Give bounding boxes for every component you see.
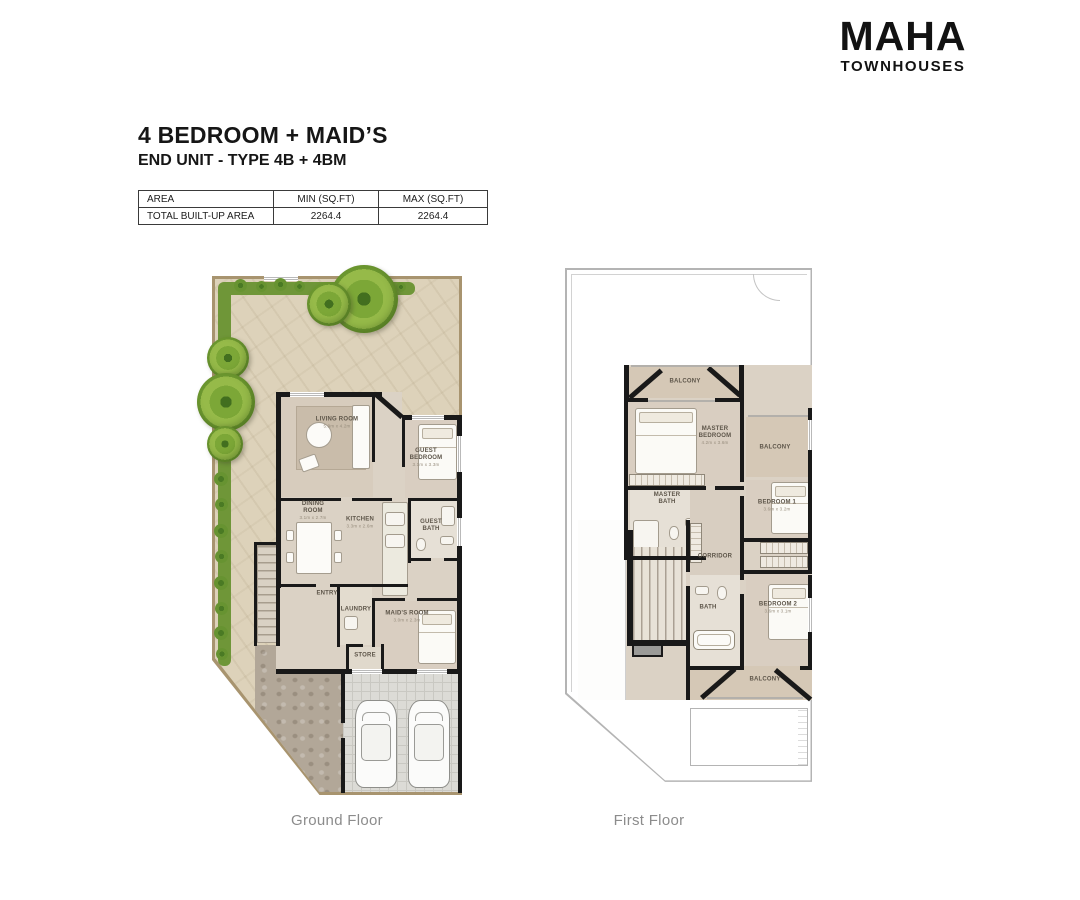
sofa-icon <box>352 405 370 469</box>
wall <box>349 644 363 647</box>
caption-ground-floor: Ground Floor <box>212 812 462 829</box>
wall <box>352 498 392 501</box>
wall <box>276 584 316 587</box>
bush-icon <box>274 278 287 291</box>
chair-icon <box>286 552 294 563</box>
room-label-maids-room: MAID'S ROOM 3.0m x 2.3m <box>385 611 428 624</box>
car-icon <box>408 700 450 788</box>
bathtub-icon <box>693 630 735 650</box>
wall <box>341 673 345 723</box>
bush-icon <box>214 626 228 640</box>
balcony-door <box>648 400 715 402</box>
room-label-entry: ENTRY <box>316 590 337 597</box>
wall <box>744 538 812 542</box>
room-label-kitchen: KITCHEN 3.3m x 2.6m <box>346 517 374 530</box>
bush-icon <box>214 472 228 486</box>
wall <box>372 392 375 462</box>
room-label-balcony-bottom: BALCONY <box>749 676 780 683</box>
wall <box>276 588 280 646</box>
wall <box>627 640 689 646</box>
void-area <box>578 520 626 700</box>
wall <box>458 673 462 793</box>
sink-icon <box>695 586 709 595</box>
wall <box>254 542 257 646</box>
garage-door <box>352 669 382 674</box>
shower-icon <box>441 506 455 526</box>
bush-icon <box>215 602 228 615</box>
wall <box>686 520 690 572</box>
bush-icon <box>234 279 247 292</box>
wardrobe-icon <box>760 542 808 554</box>
brand-tagline: TOWNHOUSES <box>833 58 973 75</box>
bush-icon <box>294 281 305 292</box>
wall <box>372 598 375 647</box>
wall <box>375 598 405 601</box>
table-row: TOTAL BUILT-UP AREA 2264.4 2264.4 <box>139 208 488 225</box>
page-title: 4 BEDROOM + MAID’S <box>138 122 388 149</box>
wall <box>800 666 812 670</box>
wall <box>626 486 706 490</box>
bed-icon <box>635 408 697 474</box>
bush-icon <box>215 550 228 563</box>
room-label-corridor: CORRIDOR <box>698 553 732 560</box>
room-label-balcony-right: BALCONY <box>759 444 790 451</box>
room-label-laundry: LAUNDRY <box>341 606 372 613</box>
title-block: 4 BEDROOM + MAID’S END UNIT - TYPE 4B + … <box>138 122 388 170</box>
header-min: MIN (SQ.FT) <box>274 191 379 208</box>
chair-icon <box>286 530 294 541</box>
sink-icon <box>440 536 454 545</box>
first-floor-plan: BALCONY MASTER BEDROOM 4.2m x 3.6m MASTE… <box>565 268 812 785</box>
header-max: MAX (SQ.FT) <box>379 191 488 208</box>
window <box>457 518 462 546</box>
tree-icon <box>307 282 351 326</box>
washer-icon <box>344 616 358 630</box>
car-icon <box>355 700 397 788</box>
wall <box>381 644 384 670</box>
wall <box>402 415 405 467</box>
room-label-guest-bath: GUEST BATH <box>419 519 443 533</box>
bush-icon <box>214 524 228 538</box>
toilet-icon <box>669 526 679 540</box>
wall <box>408 501 411 563</box>
sink-icon <box>385 534 405 548</box>
cell-area-label: TOTAL BUILT-UP AREA <box>139 208 274 225</box>
bush-icon <box>215 498 228 511</box>
toilet-icon <box>416 538 426 551</box>
cell-min-value: 2264.4 <box>274 208 379 225</box>
wardrobe-icon <box>760 556 808 568</box>
bush-icon <box>256 281 267 292</box>
wall <box>411 558 431 561</box>
balcony-railing <box>748 415 808 417</box>
ground-floor-plan: LIVING ROOM 5.9m x 4.2m GUEST BEDROOM 3.… <box>212 276 462 795</box>
room-label-living-room: LIVING ROOM 5.9m x 4.2m <box>316 417 359 430</box>
chair-icon <box>334 530 342 541</box>
toilet-icon <box>717 586 727 600</box>
wall <box>626 556 706 560</box>
window <box>808 420 813 450</box>
room-label-bedroom-1: BEDROOM 1 3.6m x 3.2m <box>758 500 796 513</box>
bush-icon <box>216 648 228 660</box>
wall <box>330 584 408 587</box>
wall <box>408 498 462 501</box>
caption-first-floor: First Floor <box>589 812 709 829</box>
room-label-master-bedroom: MASTER BEDROOM 4.2m x 3.6m <box>698 426 732 446</box>
garage-void-outline <box>690 708 808 766</box>
dining-table-icon <box>296 522 332 574</box>
wall <box>715 486 744 490</box>
garage-door <box>417 669 447 674</box>
area-table: AREA MIN (SQ.FT) MAX (SQ.FT) TOTAL BUILT… <box>138 190 488 225</box>
window <box>808 598 813 632</box>
bush-icon <box>396 282 406 292</box>
table-header-row: AREA MIN (SQ.FT) MAX (SQ.FT) <box>139 191 488 208</box>
header-area: AREA <box>139 191 274 208</box>
room-label-balcony-top: BALCONY <box>669 378 700 385</box>
tree-icon <box>197 373 255 431</box>
wall <box>417 598 462 601</box>
wall <box>444 558 462 561</box>
room-label-bath: BATH <box>699 604 716 611</box>
chair-icon <box>334 552 342 563</box>
wardrobe-icon <box>629 474 705 486</box>
room-label-master-bath: MASTER BATH <box>653 492 681 506</box>
stove-icon <box>385 512 405 526</box>
window <box>412 415 444 420</box>
hatch-marks <box>798 709 807 765</box>
wall <box>808 480 812 572</box>
room-label-store: STORE <box>354 652 376 659</box>
room-label-bedroom-2: BEDROOM 2 3.6m x 3.1m <box>759 602 797 615</box>
cell-max-value: 2264.4 <box>379 208 488 225</box>
wall <box>627 530 633 642</box>
window <box>290 392 324 397</box>
room-label-dining-room: DINING ROOM 3.1m x 2.7m <box>299 501 327 521</box>
brand-logo: MAHA TOWNHOUSES <box>833 16 973 75</box>
window <box>457 436 462 472</box>
wall <box>341 738 345 793</box>
balcony-railing <box>707 697 803 699</box>
wall <box>276 392 281 588</box>
wall <box>740 594 744 670</box>
roof-edge-line <box>571 274 572 692</box>
wall <box>744 570 812 574</box>
wall <box>739 365 744 402</box>
floorplan-page: MAHA TOWNHOUSES 4 BEDROOM + MAID’S END U… <box>0 0 1080 900</box>
stairs <box>633 547 686 640</box>
brand-name: MAHA <box>833 16 973 57</box>
wall <box>740 398 744 482</box>
wall <box>346 644 349 670</box>
room-label-guest-bedroom: GUEST BEDROOM 3.1m x 3.3m <box>410 448 442 468</box>
bush-icon <box>214 576 228 590</box>
tree-icon <box>207 426 243 462</box>
wall <box>254 542 280 545</box>
balcony-railing <box>631 365 739 367</box>
page-subtitle: END UNIT - TYPE 4B + 4BM <box>138 152 388 170</box>
